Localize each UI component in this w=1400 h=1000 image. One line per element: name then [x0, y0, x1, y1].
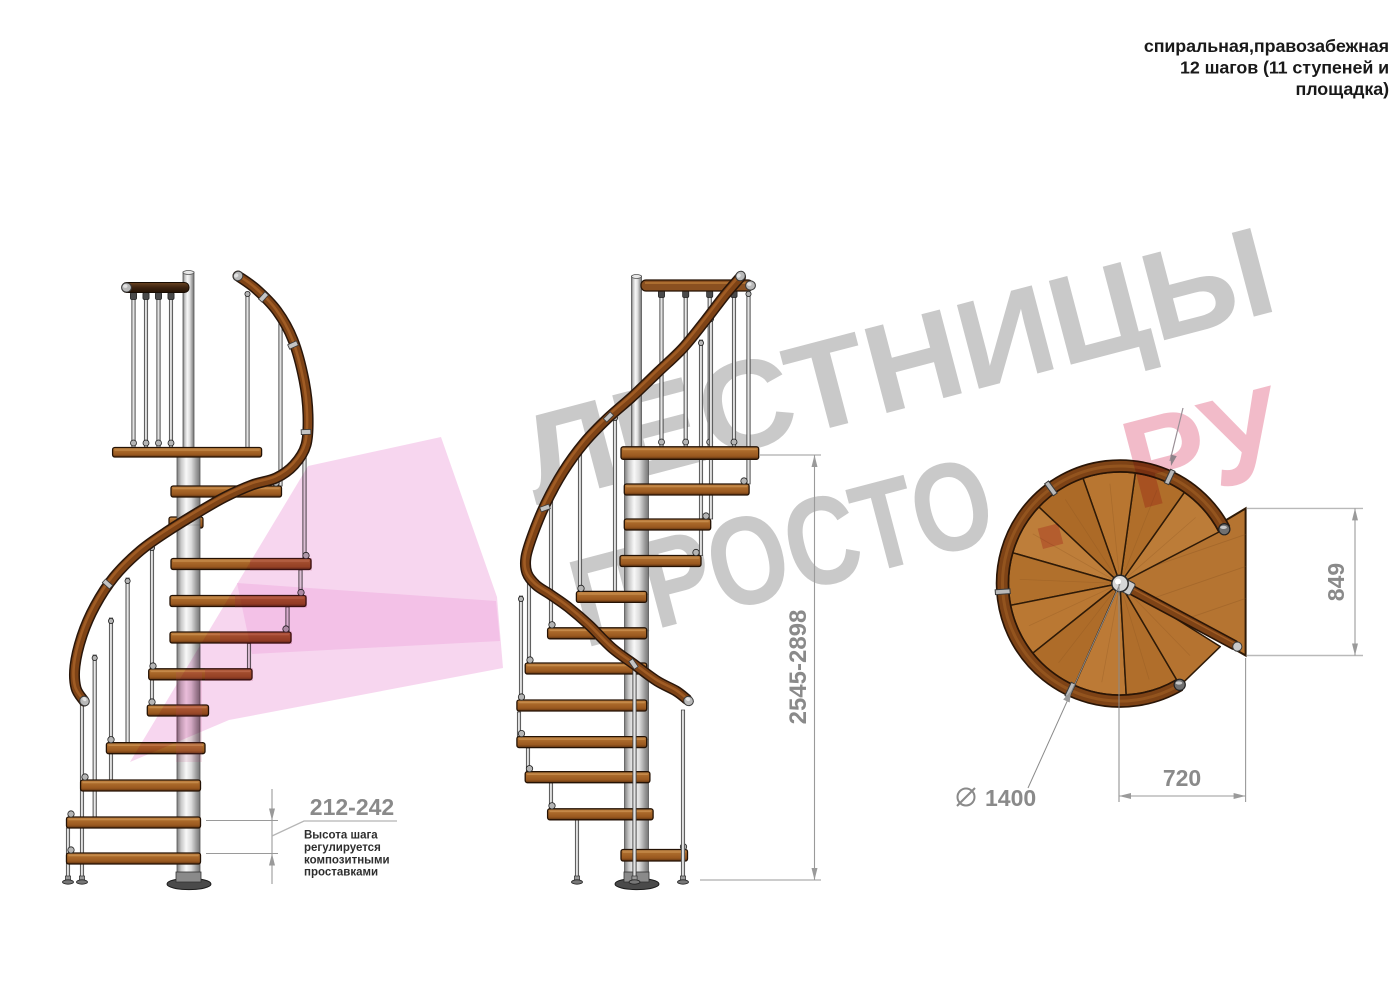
svg-text:проставками: проставками: [304, 867, 378, 879]
svg-text:1400: 1400: [985, 785, 1036, 811]
svg-text:Высота шага: Высота шага: [304, 830, 378, 842]
svg-text:2545-2898: 2545-2898: [785, 610, 812, 725]
svg-text:площадка): площадка): [1296, 79, 1390, 99]
svg-text:212-242: 212-242: [310, 794, 394, 820]
svg-text:12 шагов (11 ступеней и: 12 шагов (11 ступеней и: [1180, 58, 1389, 78]
svg-text:композитными: композитными: [304, 854, 390, 866]
svg-text:720: 720: [1163, 765, 1201, 791]
svg-text:849: 849: [1323, 563, 1349, 601]
svg-text:спиральная,правозабежная: спиральная,правозабежная: [1144, 36, 1389, 56]
svg-text:регулируется: регулируется: [304, 842, 381, 854]
